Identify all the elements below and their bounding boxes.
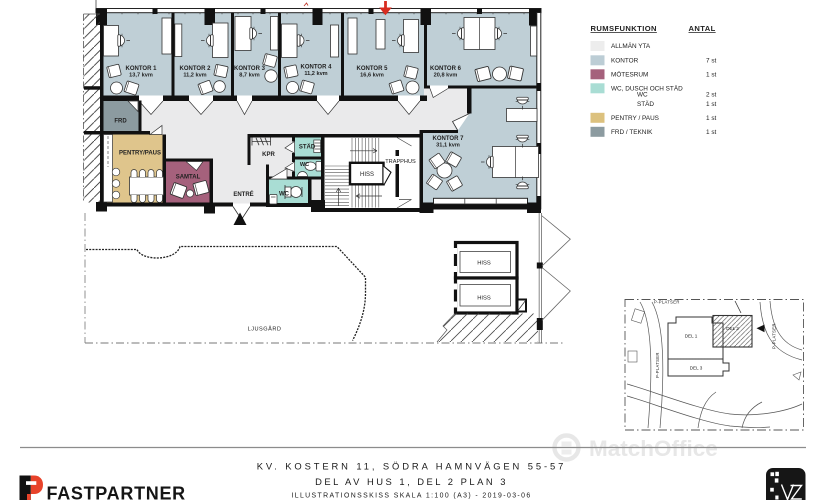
svg-text:ALLMÄN YTA: ALLMÄN YTA bbox=[611, 42, 651, 50]
svg-text:KONTOR 4: KONTOR 4 bbox=[301, 65, 333, 71]
svg-text:STÄD: STÄD bbox=[299, 144, 316, 151]
svg-text:1 st: 1 st bbox=[706, 101, 717, 108]
svg-text:WC: WC bbox=[300, 162, 309, 168]
svg-text:1 st: 1 st bbox=[706, 72, 717, 79]
svg-text:KONTOR: KONTOR bbox=[611, 58, 639, 65]
svg-text:TRAPPHUS: TRAPPHUS bbox=[385, 159, 416, 165]
svg-text:KPR: KPR bbox=[262, 152, 275, 158]
svg-text:KONTOR 5: KONTOR 5 bbox=[357, 66, 389, 72]
svg-text:13,7 kvm: 13,7 kvm bbox=[129, 73, 153, 79]
svg-text:KONTOR 6: KONTOR 6 bbox=[430, 66, 462, 72]
svg-text:KONTOR 2: KONTOR 2 bbox=[180, 66, 212, 72]
svg-text:STÄD: STÄD bbox=[637, 100, 654, 108]
svg-text:DEL 2: DEL 2 bbox=[726, 326, 739, 331]
svg-text:20,8 kvm: 20,8 kvm bbox=[434, 73, 458, 79]
svg-text:PENTRY / PAUS: PENTRY / PAUS bbox=[611, 115, 659, 122]
svg-text:ILLUSTRATIONSSKISS SKALA 1:100: ILLUSTRATIONSSKISS SKALA 1:100 (A3) - 20… bbox=[291, 493, 531, 500]
svg-text:DEL AV HUS 1, DEL 2 PLAN 3: DEL AV HUS 1, DEL 2 PLAN 3 bbox=[315, 476, 508, 487]
svg-text:KONTOR 7: KONTOR 7 bbox=[433, 136, 465, 142]
svg-text:WC: WC bbox=[637, 91, 648, 98]
svg-text:MÖTESRUM: MÖTESRUM bbox=[611, 71, 648, 79]
svg-text:ANTAL: ANTAL bbox=[689, 24, 716, 33]
svg-text:16,6 kvm: 16,6 kvm bbox=[360, 73, 384, 79]
svg-text:HISS: HISS bbox=[360, 172, 374, 178]
svg-text:1 st: 1 st bbox=[706, 129, 717, 136]
svg-text:HISS: HISS bbox=[477, 261, 491, 267]
svg-text:P-PLATSER: P-PLATSER bbox=[655, 352, 660, 378]
svg-text:7 st: 7 st bbox=[706, 58, 717, 65]
svg-text:RUMSFUNKTION: RUMSFUNKTION bbox=[591, 24, 657, 33]
svg-text:FASTPARTNER: FASTPARTNER bbox=[47, 484, 186, 500]
svg-text:P-PLATSER: P-PLATSER bbox=[772, 323, 777, 349]
svg-text:HISS: HISS bbox=[477, 296, 491, 302]
svg-text:DEL 3: DEL 3 bbox=[690, 366, 703, 371]
svg-text:KONTOR 3: KONTOR 3 bbox=[234, 66, 266, 72]
svg-text:11,2 kvm: 11,2 kvm bbox=[304, 71, 327, 77]
svg-text:P-PLATSER: P-PLATSER bbox=[654, 300, 680, 305]
svg-text:PENTRY/PAUS: PENTRY/PAUS bbox=[119, 151, 161, 157]
svg-text:SAMTAL: SAMTAL bbox=[176, 175, 201, 181]
svg-text:31,1 kvm: 31,1 kvm bbox=[436, 143, 460, 149]
svg-text:FRD: FRD bbox=[114, 119, 127, 125]
svg-text:KONTOR 1: KONTOR 1 bbox=[126, 66, 158, 72]
svg-text:1 st: 1 st bbox=[706, 115, 717, 122]
svg-text:DEL 1: DEL 1 bbox=[685, 334, 698, 339]
svg-text:WC: WC bbox=[279, 192, 290, 198]
svg-text:FRD / TEKNIK: FRD / TEKNIK bbox=[611, 129, 653, 136]
svg-text:8,7 kvm: 8,7 kvm bbox=[239, 73, 260, 79]
svg-text:LJUSGÅRD: LJUSGÅRD bbox=[248, 326, 282, 333]
svg-text:ENTRÉ: ENTRÉ bbox=[233, 190, 253, 198]
svg-text:KV. KOSTERN 11, SÖDRA HAMNVÄGE: KV. KOSTERN 11, SÖDRA HAMNVÄGEN 55-57 bbox=[257, 461, 566, 472]
svg-text:11,2 kvm: 11,2 kvm bbox=[183, 73, 206, 79]
svg-text:MatchOffice: MatchOffice bbox=[589, 436, 718, 461]
svg-text:2 st: 2 st bbox=[706, 91, 717, 98]
